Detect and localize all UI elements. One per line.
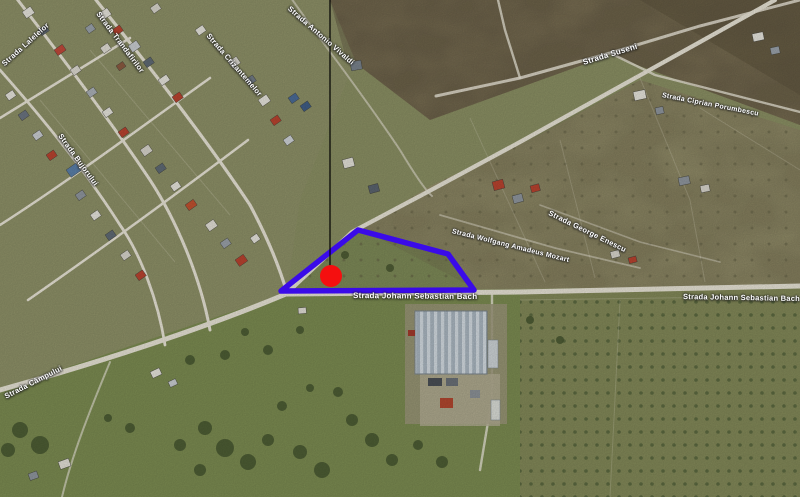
location-marker[interactable]	[320, 265, 342, 287]
photo-grain	[0, 0, 800, 497]
street-label-main-center: Strada Johann Sebastian Bach	[353, 291, 477, 301]
satellite-canvas	[0, 0, 800, 497]
satellite-map[interactable]: Strada Johann Sebastian Bach Strada Joha…	[0, 0, 800, 497]
